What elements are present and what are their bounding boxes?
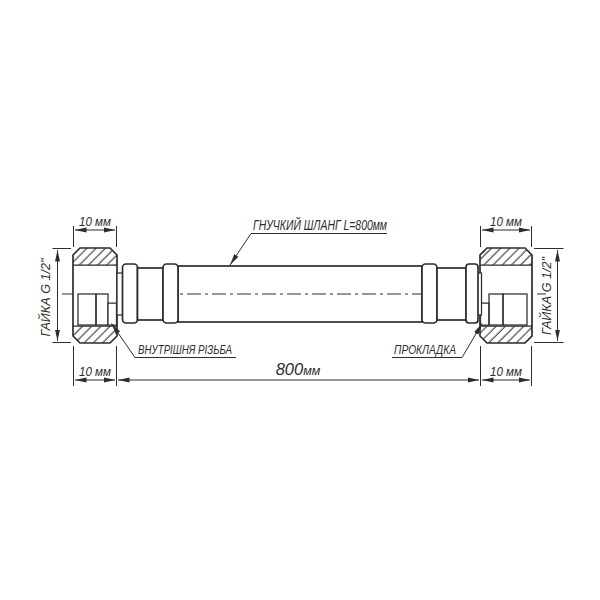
label-gasket: ПРОКЛАДКА — [394, 342, 456, 357]
flexible-hose-diagram: 10 мм 10 мм 10 мм 10 мм 800мм ГНУЧКИЙ ШЛ… — [0, 0, 600, 600]
dim-nut-width-top-left: 10 мм — [79, 215, 111, 229]
label-nut-left: ГАЙКА G 1/2" — [37, 257, 53, 336]
left-nut-step — [108, 303, 117, 325]
right-nut-bottom-hatch — [480, 326, 532, 343]
label-internal-thread: ВНУТРІШНЯ РІЗЬБА — [138, 342, 232, 357]
right-nut-top-hatch — [480, 248, 532, 265]
right-ferrule — [422, 264, 482, 323]
left-nut-top-hatch — [73, 248, 117, 265]
right-nut — [480, 248, 532, 343]
dim-nut-width-bottom-left: 10 мм — [79, 365, 111, 379]
dim-hose-length-unit: мм — [303, 364, 321, 378]
left-ferrule-flange-outer — [123, 264, 138, 323]
right-ferrule-tube — [437, 268, 466, 320]
left-ferrule — [117, 264, 178, 323]
leader-hose — [230, 234, 387, 266]
left-nut — [73, 248, 117, 343]
label-hose: ГНУЧКИЙ ШЛАНГ L=800мм — [253, 216, 387, 233]
dim-hose-length: 800мм — [276, 360, 321, 378]
dim-hose-length-value: 800 — [276, 360, 304, 378]
right-ferrule-flange-outer — [466, 264, 478, 323]
right-ferrule-flange-inner — [422, 264, 437, 323]
technical-drawing-page: 10 мм 10 мм 10 мм 10 мм 800мм ГНУЧКИЙ ШЛ… — [0, 0, 600, 600]
dim-nut-width-bottom-right: 10 мм — [490, 365, 522, 379]
dim-nut-width-top-right: 10 мм — [490, 215, 522, 229]
left-nut-bottom-hatch — [73, 326, 117, 343]
left-ferrule-tube — [138, 268, 164, 320]
left-ferrule-flange-inner — [163, 264, 178, 323]
label-nut-right: ГАЙКА G 1/2" — [538, 256, 554, 335]
